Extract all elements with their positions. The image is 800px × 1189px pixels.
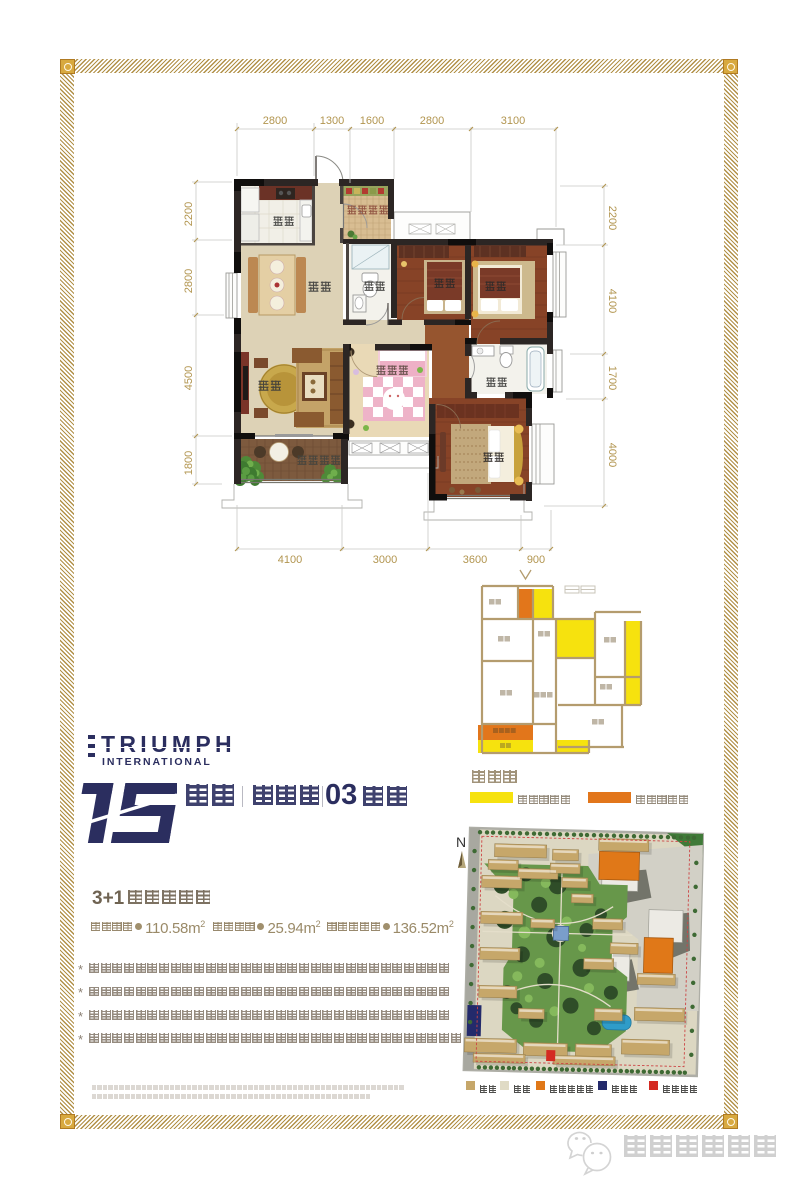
svg-text:4000: 4000: [606, 443, 618, 467]
svg-text:900: 900: [527, 554, 545, 566]
svg-text:N: N: [456, 834, 466, 850]
svg-text:4100: 4100: [278, 554, 302, 566]
svg-text:1600: 1600: [360, 115, 384, 127]
svg-text:1300: 1300: [320, 115, 344, 127]
svg-text:4500: 4500: [183, 366, 195, 390]
svg-text:3000: 3000: [373, 554, 397, 566]
svg-text:2800: 2800: [263, 115, 287, 127]
svg-text:2200: 2200: [606, 206, 618, 230]
svg-text:1700: 1700: [606, 366, 618, 390]
svg-text:3600: 3600: [463, 554, 487, 566]
svg-text:1800: 1800: [183, 451, 195, 475]
svg-text:2800: 2800: [183, 269, 195, 293]
svg-text:2800: 2800: [420, 115, 444, 127]
svg-text:4100: 4100: [606, 289, 618, 313]
svg-text:3100: 3100: [501, 115, 525, 127]
svg-text:2200: 2200: [183, 202, 195, 226]
